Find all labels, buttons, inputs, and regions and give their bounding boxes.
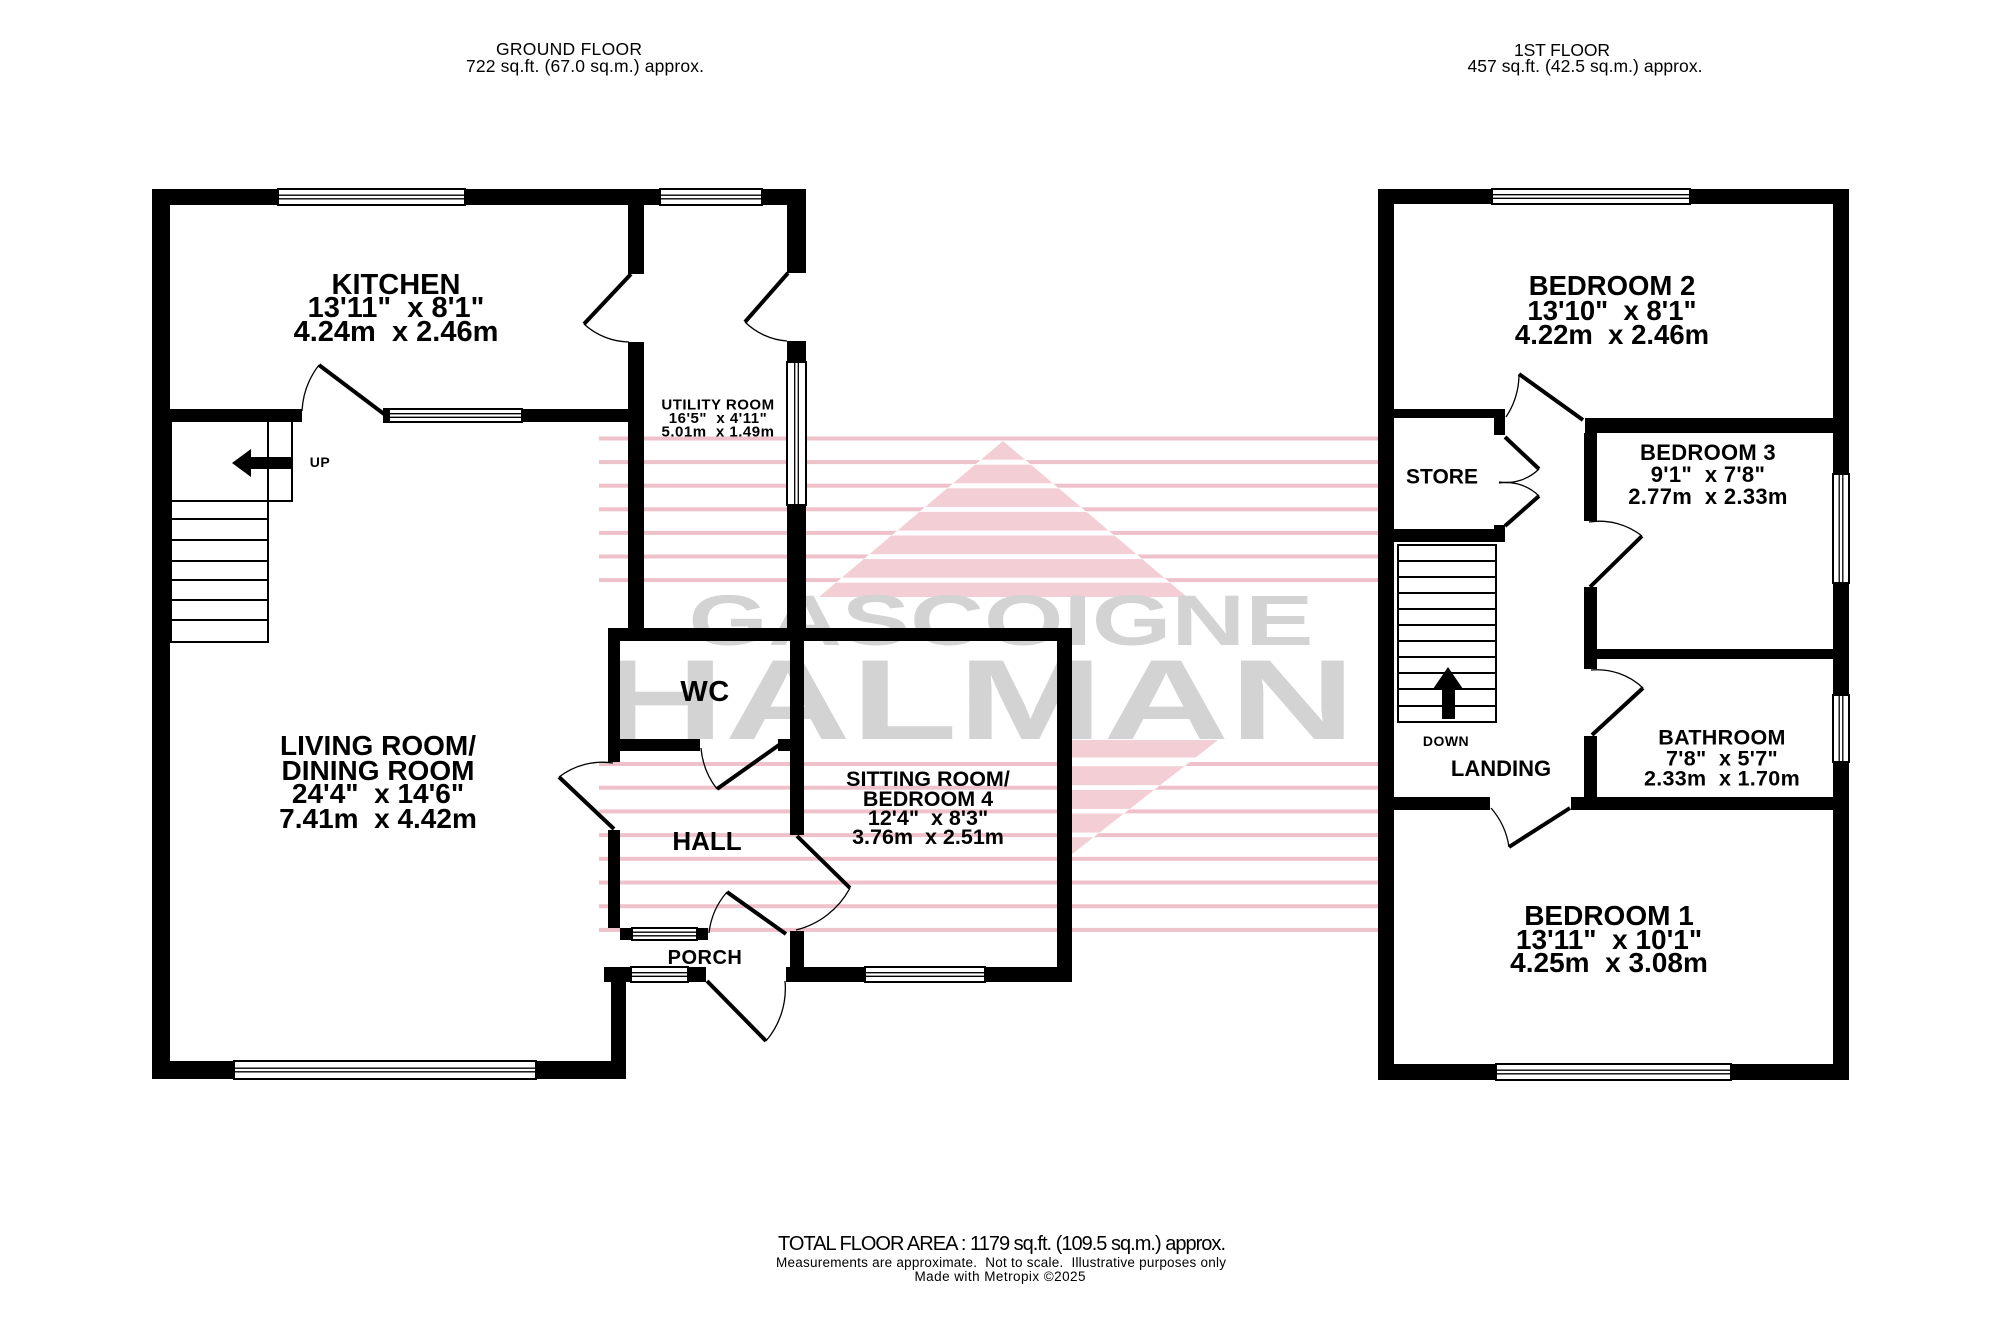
- svg-text:STORE: STORE: [1406, 466, 1478, 489]
- svg-text:TOTAL FLOOR AREA : 1179 sq.ft.: TOTAL FLOOR AREA : 1179 sq.ft. (109.5 sq…: [778, 1233, 1226, 1255]
- svg-text:PORCH: PORCH: [668, 947, 743, 969]
- svg-text:LANDING: LANDING: [1451, 756, 1551, 781]
- svg-text:WC: WC: [680, 676, 729, 708]
- svg-text:722 sq.ft. (67.0 sq.m.) approx: 722 sq.ft. (67.0 sq.m.) approx.: [466, 56, 704, 76]
- svg-text:UP: UP: [310, 454, 330, 470]
- svg-text:4.24m x 2.46m: 4.24m x 2.46m: [294, 316, 499, 348]
- svg-text:HALL: HALL: [672, 826, 741, 856]
- svg-text:Measurements are approximate.: Measurements are approximate. Not to sca…: [776, 1255, 1226, 1270]
- svg-text:Made with Metropix ©2025: Made with Metropix ©2025: [915, 1269, 1086, 1284]
- svg-text:2.77m x 2.33m: 2.77m x 2.33m: [1628, 484, 1788, 509]
- svg-text:3.76m x 2.51m: 3.76m x 2.51m: [852, 825, 1004, 849]
- svg-text:457 sq.ft. (42.5 sq.m.) approx: 457 sq.ft. (42.5 sq.m.) approx.: [1468, 56, 1703, 76]
- svg-text:DOWN: DOWN: [1423, 733, 1469, 749]
- svg-text:5.01m x 1.49m: 5.01m x 1.49m: [662, 424, 775, 441]
- svg-text:7.41m x 4.42m: 7.41m x 4.42m: [279, 803, 477, 834]
- svg-text:4.22m x 2.46m: 4.22m x 2.46m: [1515, 319, 1709, 350]
- svg-text:4.25m x 3.08m: 4.25m x 3.08m: [1510, 947, 1708, 978]
- svg-text:2.33m x 1.70m: 2.33m x 1.70m: [1644, 767, 1800, 791]
